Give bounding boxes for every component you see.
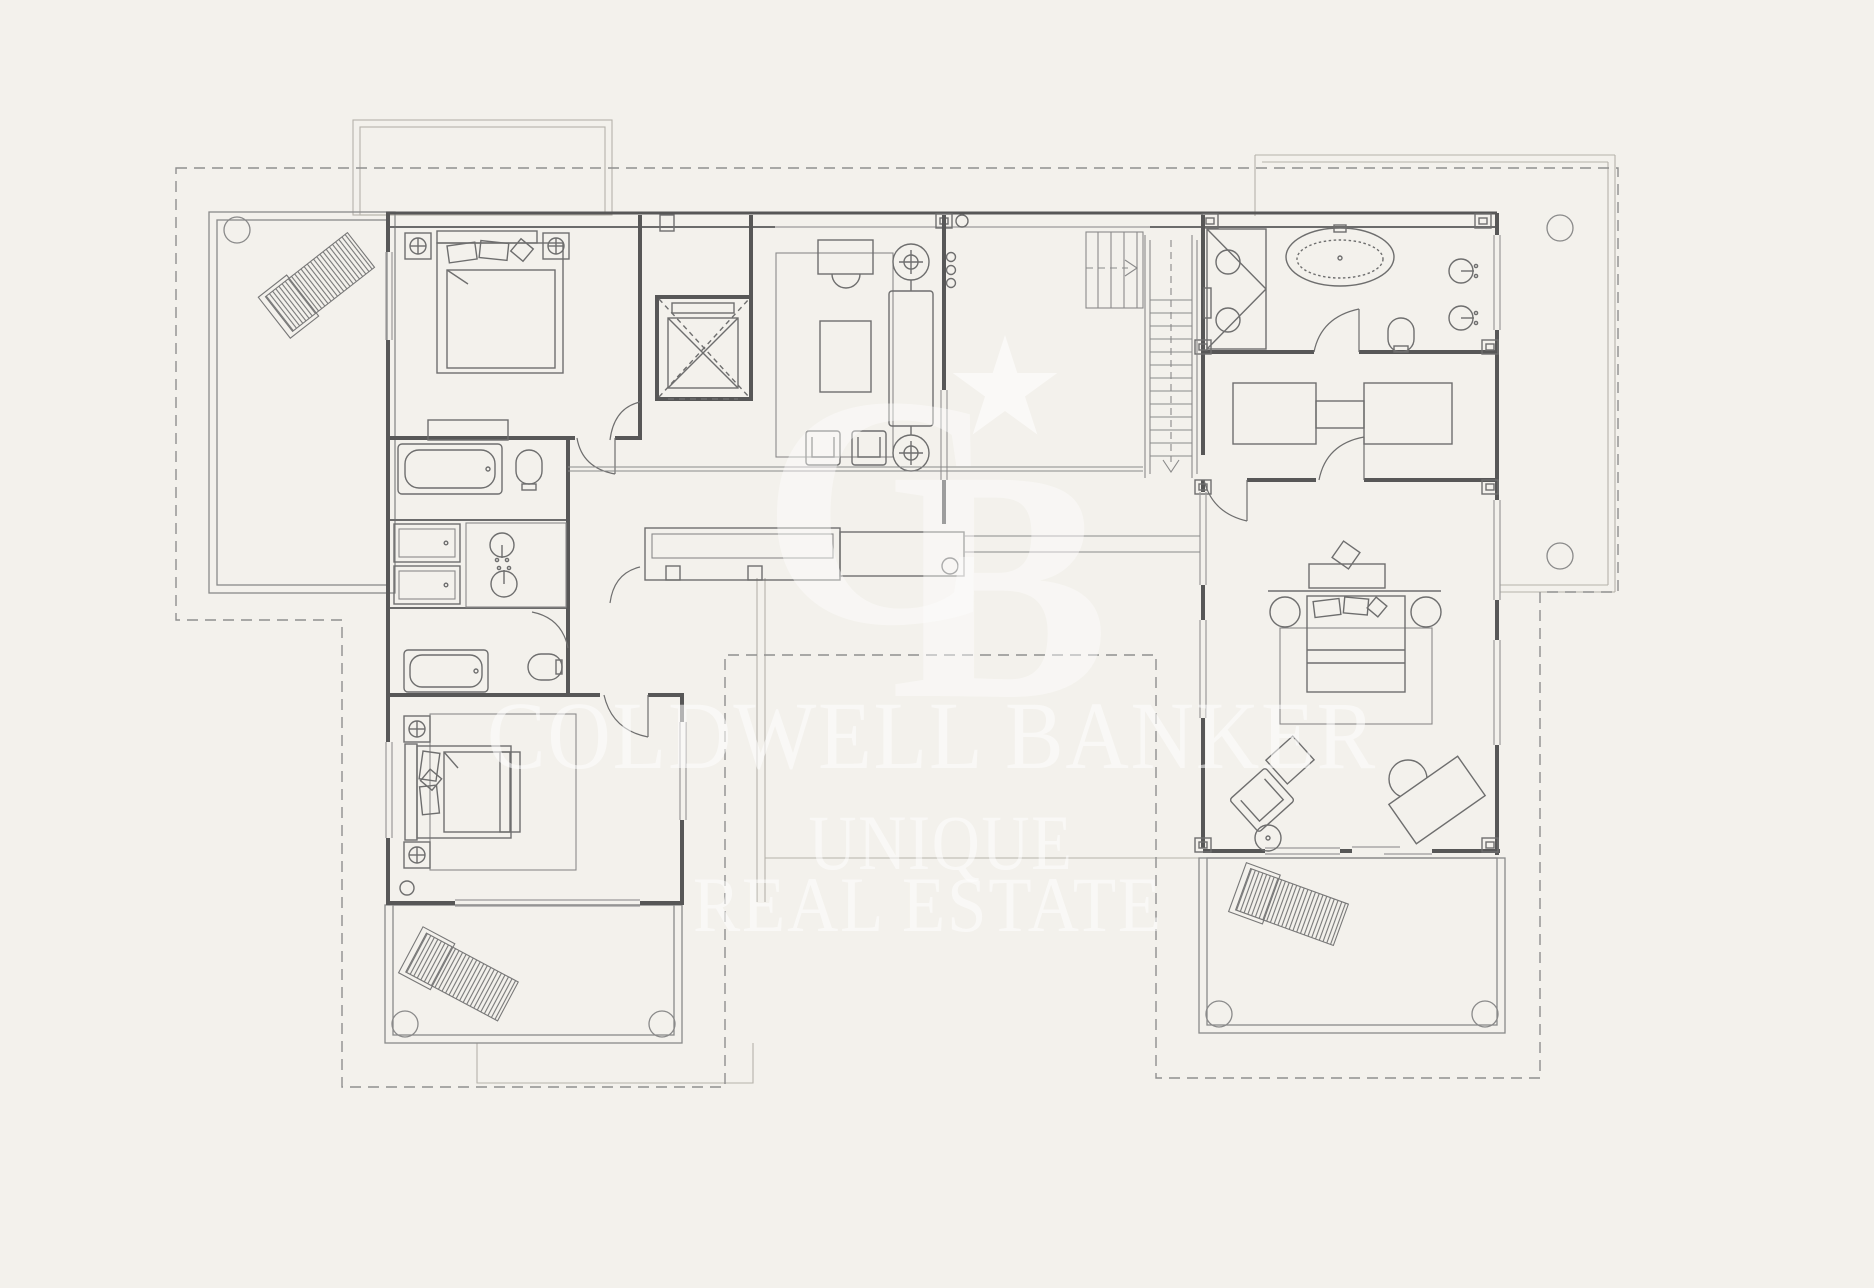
washbasin-icon xyxy=(491,566,517,597)
nightstand-lamp-icon xyxy=(543,233,569,259)
nightstand-lamp-icon xyxy=(404,842,430,868)
watermark-line-1: COLDWELL BANKER xyxy=(487,682,1377,789)
washbasin-icon xyxy=(490,533,514,562)
sun-lounger-icon xyxy=(258,229,377,338)
bathtub-icon xyxy=(404,650,488,692)
sun-lounger-icon xyxy=(399,927,521,1025)
shower-icon xyxy=(394,524,460,562)
corner-column-icon xyxy=(1206,1001,1232,1027)
dining-table-icon xyxy=(818,240,873,288)
terrace-top-left xyxy=(209,212,395,593)
watermark: C B COLDWELL BANKER UNIQUE REAL ESTATE xyxy=(487,329,1377,948)
floor-plan-page: C B COLDWELL BANKER UNIQUE REAL ESTATE xyxy=(0,0,1874,1288)
corner-column-icon xyxy=(224,217,250,243)
bathroom-1-fixtures xyxy=(398,444,542,494)
side-table-icon xyxy=(1255,825,1281,851)
side-table-icon xyxy=(1411,597,1441,627)
corner-column-icon xyxy=(1547,215,1573,241)
wardrobe-icon xyxy=(1364,383,1452,444)
toilet-icon xyxy=(1388,318,1414,352)
toilet-icon xyxy=(528,654,562,680)
floor-plan-drawing: C B COLDWELL BANKER UNIQUE REAL ESTATE xyxy=(0,0,1874,1288)
corner-column-icon xyxy=(1472,1001,1498,1027)
bathtub-icon xyxy=(398,444,502,494)
double-bed-icon xyxy=(437,231,563,373)
side-table-icon xyxy=(1270,597,1300,627)
wardrobe-icon xyxy=(1233,383,1316,444)
shower-icon xyxy=(394,566,460,604)
nightstand-lamp-icon xyxy=(405,233,431,259)
walk-in-closet xyxy=(1233,383,1452,444)
elevator xyxy=(657,297,751,399)
shower-room-fixtures xyxy=(394,523,566,607)
bedroom-1-furniture xyxy=(405,231,569,440)
double-bed-icon xyxy=(1307,596,1405,692)
wardrobe-icon xyxy=(1316,401,1364,428)
corner-column-icon xyxy=(649,1011,675,1037)
washbasin-icon xyxy=(1449,259,1478,283)
toilet-icon xyxy=(516,450,542,490)
desk-icon xyxy=(1389,756,1485,843)
shower-icon xyxy=(1204,229,1266,349)
freestanding-bathtub-icon xyxy=(1286,225,1394,286)
washbasin-icon xyxy=(1449,306,1478,330)
sun-lounger-icon xyxy=(1229,863,1350,949)
corner-column-icon xyxy=(1547,543,1573,569)
ceiling-speaker-icon xyxy=(893,244,929,280)
master-bathroom-fixtures xyxy=(1204,225,1478,352)
nightstand-lamp-icon xyxy=(404,716,430,742)
terrace-bottom-right xyxy=(1199,858,1505,1033)
corner-column-icon xyxy=(392,1011,418,1037)
terrace-bottom-left xyxy=(385,905,682,1043)
vanity-counter xyxy=(466,523,566,607)
watermark-line-3: REAL ESTATE xyxy=(693,861,1163,948)
